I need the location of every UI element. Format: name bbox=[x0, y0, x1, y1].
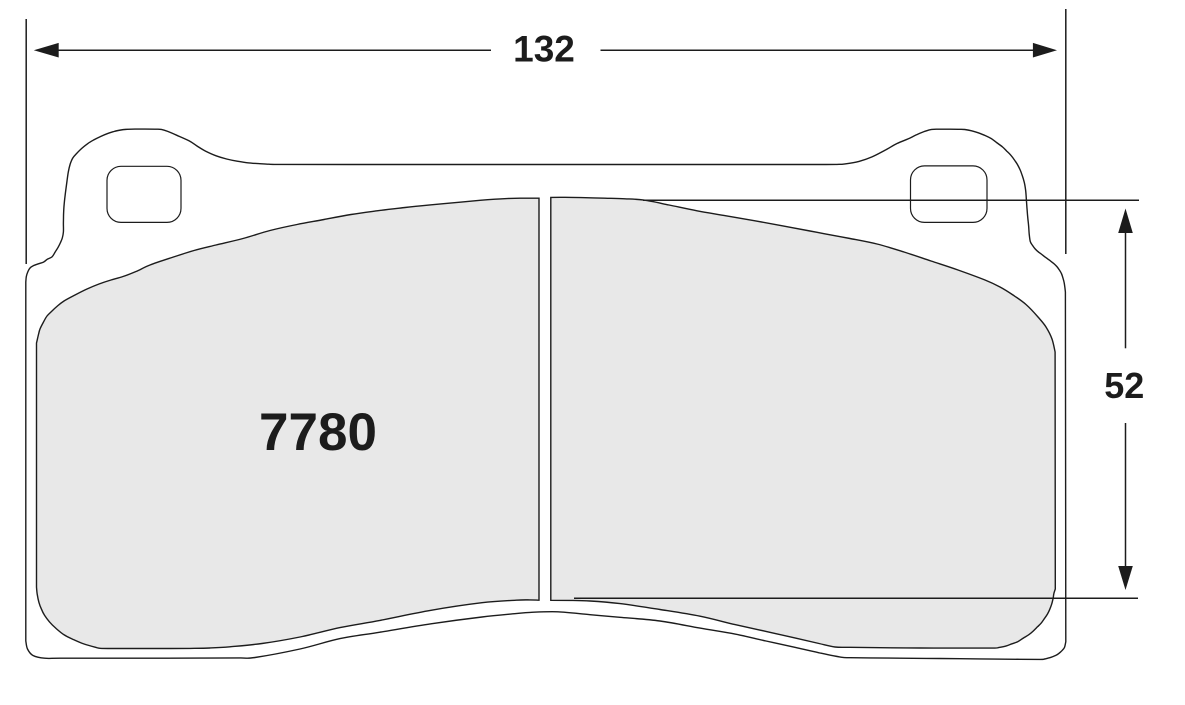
svg-text:52: 52 bbox=[1104, 365, 1144, 406]
svg-text:7780: 7780 bbox=[259, 403, 377, 462]
svg-text:132: 132 bbox=[513, 28, 575, 69]
